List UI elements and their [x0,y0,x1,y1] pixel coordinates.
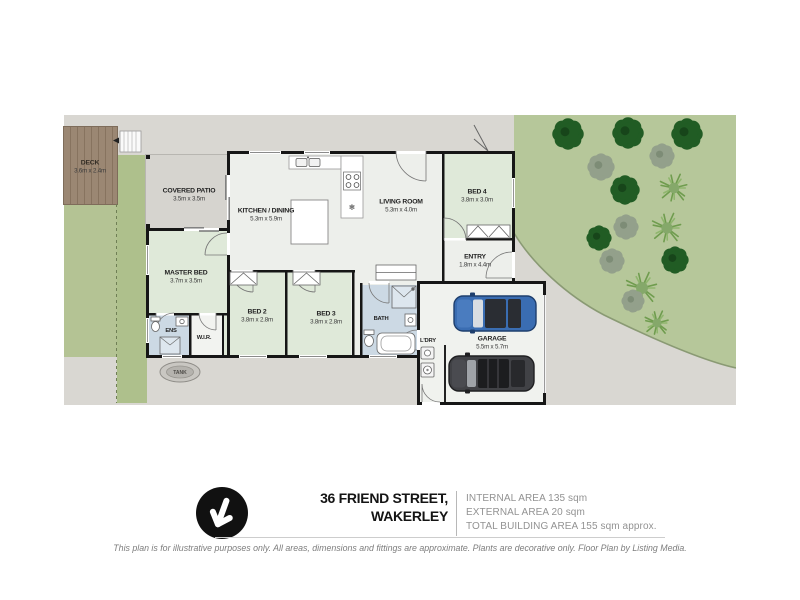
internal-area: INTERNAL AREA 135 sqm [466,492,657,506]
living-room-label: LIVING ROOM 5.3m x 4.0m [379,199,423,214]
area-summary: INTERNAL AREA 135 sqm EXTERNAL AREA 20 s… [466,492,657,533]
covered-patio-label: COVERED PATIO 3.5m x 3.5m [163,188,216,203]
entry-steps-icon [113,131,141,152]
svg-text:❄: ❄ [349,203,356,212]
address-line1: 36 FRIEND STREET, [320,490,448,508]
bed2-label: BED 2 3.8m x 2.8m [241,309,273,324]
entry-label: ENTRY 1.8m x 4.4m [459,254,491,269]
address-line2: WAKERLEY [320,508,448,526]
ldry-label: L'DRY [420,338,436,344]
wir-label: W.I.R. [197,335,212,341]
bath-fixtures [364,286,416,354]
water-tank: TANK [160,362,200,382]
vertical-divider [456,491,457,536]
dark-plant-icon [671,118,703,150]
tank-label: TANK [173,370,187,376]
bed3-label: BED 3 3.8m x 2.8m [310,311,342,326]
bed4-label: BED 4 3.8m x 3.0m [461,189,493,204]
dark-plant-icon [586,225,611,250]
laundry-fixtures [421,347,434,377]
gate-icon [474,125,488,151]
bath-label: BATH [374,316,389,322]
deck-label: DECK 3.6m x 2.4m [74,160,106,175]
car-dark [449,353,534,394]
gray-plant-icon [587,153,614,180]
site-plan-graphics: ❄ TANK [64,115,736,405]
gray-plant-icon [621,289,644,312]
dark-plant-icon [612,117,644,149]
ens-label: ENS [165,328,176,334]
horizontal-rule [215,537,665,538]
disclaimer-text: This plan is for illustrative purposes o… [0,543,800,553]
dark-plant-icon [552,118,584,150]
garage-label: GARAGE 5.5m x 5.7m [476,336,508,351]
property-address: 36 FRIEND STREET, WAKERLEY [320,490,448,525]
footer: 36 FRIEND STREET, WAKERLEY INTERNAL AREA… [0,480,800,570]
car-blue-suv [454,293,536,334]
ensuite-fixtures [151,317,188,354]
gray-plant-icon [599,248,624,273]
gray-plant-icon [649,143,674,168]
kitchen-fixtures: ❄ [289,156,363,244]
gray-plant-icon [613,214,638,239]
master-bed-label: MASTER BED 3.7m x 3.5m [165,270,208,285]
external-area: EXTERNAL AREA 20 sqm [466,506,657,520]
dark-plant-icon [661,246,688,273]
dark-plant-icon [610,175,639,204]
kitchen-dining-label: KITCHEN / DINING 5.3m x 5.9m [238,208,294,223]
floor-plan: ❄ TANK [64,115,736,405]
garden-bed [514,115,736,368]
listing-media-logo-icon [194,485,250,541]
total-area: TOTAL BUILDING AREA 155 sqm approx. [466,520,657,534]
